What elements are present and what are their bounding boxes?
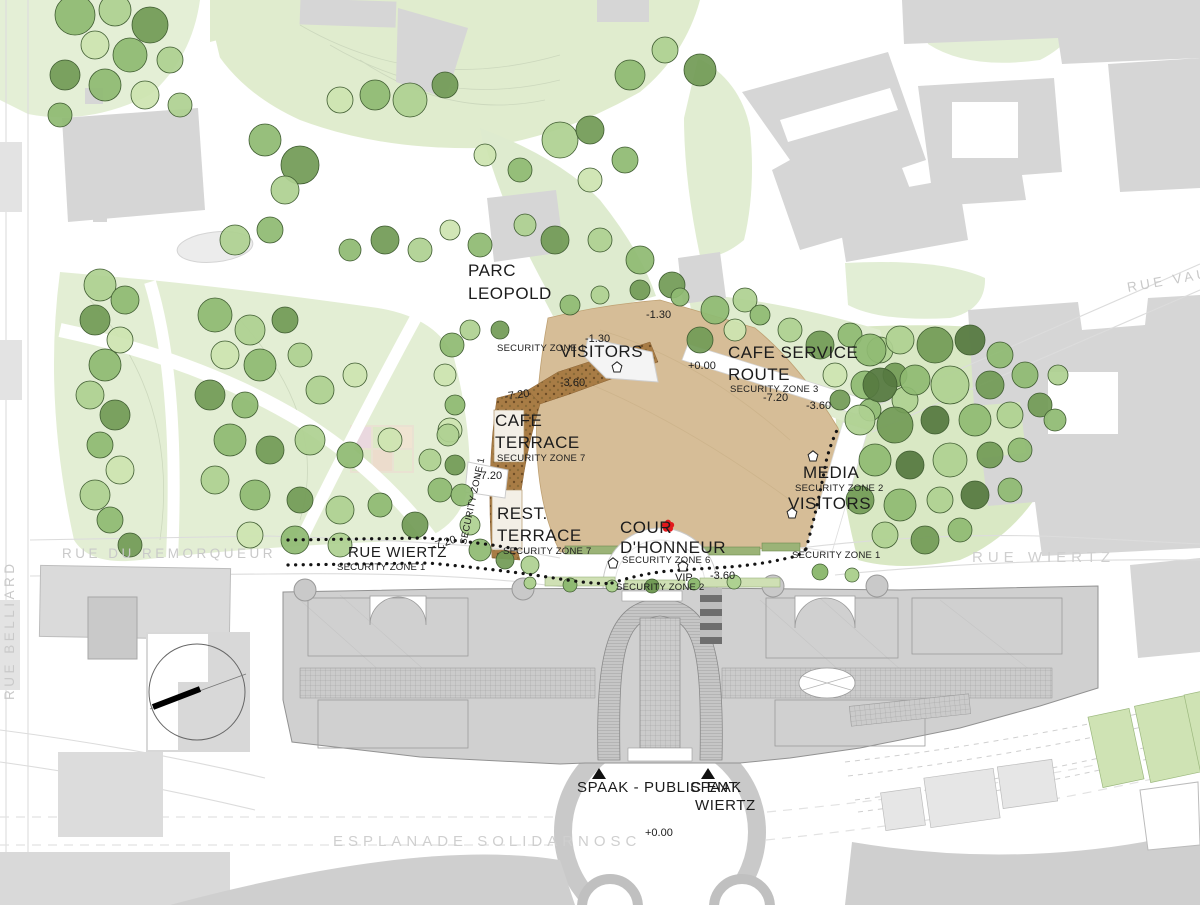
tree xyxy=(959,404,991,436)
spaak-building xyxy=(283,575,1098,764)
tree xyxy=(271,176,299,204)
tree xyxy=(542,122,578,158)
rue-vau-label: RUE VAU xyxy=(1126,266,1200,295)
cour-dhonneur-label: COUR xyxy=(620,518,672,537)
tree xyxy=(687,327,713,353)
tree xyxy=(514,214,536,236)
tree xyxy=(100,400,130,430)
tree xyxy=(97,507,123,533)
tree xyxy=(469,539,491,561)
tree xyxy=(111,286,139,314)
tree xyxy=(917,327,953,363)
tree xyxy=(113,38,147,72)
security-zone-7-cafe: SECURITY ZONE 7 xyxy=(497,453,586,464)
tree xyxy=(997,402,1023,428)
tree xyxy=(81,31,109,59)
tree xyxy=(591,286,609,304)
cafe-terrace-label2: TERRACE xyxy=(495,433,580,452)
tree xyxy=(886,326,914,354)
tree xyxy=(368,493,392,517)
tree xyxy=(106,456,134,484)
tree xyxy=(1044,409,1066,431)
tree xyxy=(132,7,168,43)
tree xyxy=(437,424,459,446)
level-minus130-a: -1.30 xyxy=(585,333,610,345)
tree xyxy=(684,54,716,86)
tree xyxy=(220,225,250,255)
tree xyxy=(339,239,361,261)
tree xyxy=(896,451,924,479)
tree xyxy=(440,220,460,240)
tree xyxy=(89,349,121,381)
tree xyxy=(378,428,402,452)
tree xyxy=(445,455,465,475)
rue-belliard-road xyxy=(0,0,28,905)
tree xyxy=(998,478,1022,502)
level-minus360-route: -3.60 xyxy=(806,400,831,412)
tree xyxy=(863,368,897,402)
level-minus720-route: -7.20 xyxy=(763,392,788,404)
tree xyxy=(1008,438,1032,462)
tree xyxy=(830,390,850,410)
tree xyxy=(232,392,258,418)
tree xyxy=(588,228,612,252)
tree xyxy=(214,424,246,456)
tree xyxy=(652,37,678,63)
tree xyxy=(306,376,334,404)
level-minus360-plaza: -3.60 xyxy=(560,377,585,389)
tree xyxy=(877,407,913,443)
skylight-band-west xyxy=(300,668,595,698)
tree xyxy=(360,80,390,110)
tree xyxy=(201,466,229,494)
tree xyxy=(560,295,580,315)
tree xyxy=(371,226,399,254)
tree xyxy=(80,480,110,510)
tree xyxy=(287,487,313,513)
tree xyxy=(961,481,989,509)
ramp xyxy=(700,588,722,644)
rue-du-remorqueur-label: RUE DU REMORQUEUR xyxy=(62,546,276,561)
security-zone-1-east: SECURITY ZONE 1 xyxy=(792,550,881,561)
tree xyxy=(948,518,972,542)
tree xyxy=(750,305,770,325)
tree xyxy=(343,363,367,387)
tree xyxy=(55,0,95,35)
hemicycle-core xyxy=(640,618,680,748)
tree xyxy=(955,325,985,355)
cafe-terrace-label: CAFE xyxy=(495,411,542,430)
level-minus360-vip: -3.60 xyxy=(710,570,735,582)
tree xyxy=(445,395,465,415)
site-plan-canvas: PARC LEOPOLD SECURITY ZONE 1 VISITORS -1… xyxy=(0,0,1200,905)
parc-leopold-label: PARC xyxy=(468,261,516,280)
tree xyxy=(491,321,509,339)
security-zone-2-road: SECURITY ZONE 2 xyxy=(616,582,705,593)
tree xyxy=(911,526,939,554)
esplanade-label: ESPLANADE SOLIDARNOSC xyxy=(333,833,641,850)
rest-terrace-label: REST. xyxy=(497,504,548,523)
security-zone-6: SECURITY ZONE 6 xyxy=(622,555,711,566)
visitors-media-label: VISITORS xyxy=(788,494,871,513)
tree xyxy=(434,364,456,386)
platforms xyxy=(881,759,1058,830)
tree xyxy=(541,226,569,254)
tree xyxy=(50,60,80,90)
tree xyxy=(288,343,312,367)
tree xyxy=(235,315,265,345)
tree xyxy=(428,478,452,502)
media-label: MEDIA xyxy=(803,463,860,482)
tree xyxy=(244,349,276,381)
tree xyxy=(1012,362,1038,388)
tree xyxy=(408,238,432,262)
tree xyxy=(440,333,464,357)
tree xyxy=(921,406,949,434)
level-plus000-esplanade: +0.00 xyxy=(645,827,673,839)
tree xyxy=(933,443,967,477)
tree xyxy=(976,371,1004,399)
rue-belliard-label: RUE BELLIARD xyxy=(2,560,17,700)
level-plus000-route: +0.00 xyxy=(688,360,716,372)
tree xyxy=(237,522,263,548)
tree xyxy=(671,288,689,306)
tree xyxy=(900,365,930,395)
tree xyxy=(295,425,325,455)
tree xyxy=(198,298,232,332)
tree xyxy=(272,307,298,333)
tree xyxy=(987,342,1013,368)
tree xyxy=(931,366,969,404)
tree xyxy=(845,405,875,435)
tree xyxy=(578,168,602,192)
tree xyxy=(468,233,492,257)
tree xyxy=(157,47,183,73)
security-zone-7-rest: SECURITY ZONE 7 xyxy=(503,546,592,557)
tree xyxy=(460,320,480,340)
tree xyxy=(626,246,654,274)
tree xyxy=(576,116,604,144)
tree xyxy=(630,280,650,300)
tree xyxy=(508,158,532,182)
tree xyxy=(326,496,354,524)
tree xyxy=(257,217,283,243)
tree xyxy=(859,444,891,476)
cafe-service-label: CAFE SERVICE xyxy=(728,343,858,362)
tree xyxy=(393,83,427,117)
tree xyxy=(823,363,847,387)
security-zone-1-west: SECURITY ZONE 1 xyxy=(337,562,426,573)
spaak-wiertz-label2: WIERTZ xyxy=(695,797,756,814)
tree xyxy=(107,327,133,353)
tree xyxy=(240,480,270,510)
tree xyxy=(474,144,496,166)
spaak-wiertz-label: SPAAK xyxy=(690,779,742,796)
tree xyxy=(927,487,953,513)
tree xyxy=(48,103,72,127)
tree xyxy=(778,318,802,342)
tree xyxy=(1048,365,1068,385)
security-zone-2-media: SECURITY ZONE 2 xyxy=(795,483,884,494)
rue-wiertz-east-label: RUE WIERTZ xyxy=(972,549,1115,566)
tree xyxy=(131,81,159,109)
tree xyxy=(89,69,121,101)
tree xyxy=(615,60,645,90)
tree xyxy=(402,512,428,538)
rest-terrace-label2: TERRACE xyxy=(497,526,582,545)
tree xyxy=(977,442,1003,468)
tree xyxy=(419,449,441,471)
tree xyxy=(249,124,281,156)
tree xyxy=(724,319,746,341)
tree xyxy=(80,305,110,335)
tree xyxy=(337,442,363,468)
tree xyxy=(195,380,225,410)
tree xyxy=(872,522,898,548)
skylight-band-east xyxy=(722,668,1052,698)
tree xyxy=(612,147,638,173)
parc-leopold-label2: LEOPOLD xyxy=(468,284,552,303)
tree xyxy=(521,556,539,574)
tree xyxy=(884,489,916,521)
tree xyxy=(211,341,239,369)
rail-planting xyxy=(1088,687,1200,788)
tree xyxy=(87,432,113,458)
site-plan: PARC LEOPOLD SECURITY ZONE 1 VISITORS -1… xyxy=(0,0,1200,905)
level-minus130-b: -1.30 xyxy=(646,309,671,321)
tree xyxy=(327,87,353,113)
tree xyxy=(432,72,458,98)
cafe-service-label2: ROUTE xyxy=(728,365,790,384)
tree xyxy=(76,381,104,409)
tree xyxy=(256,436,284,464)
tree xyxy=(701,296,729,324)
tree xyxy=(854,334,886,366)
tree xyxy=(168,93,192,117)
